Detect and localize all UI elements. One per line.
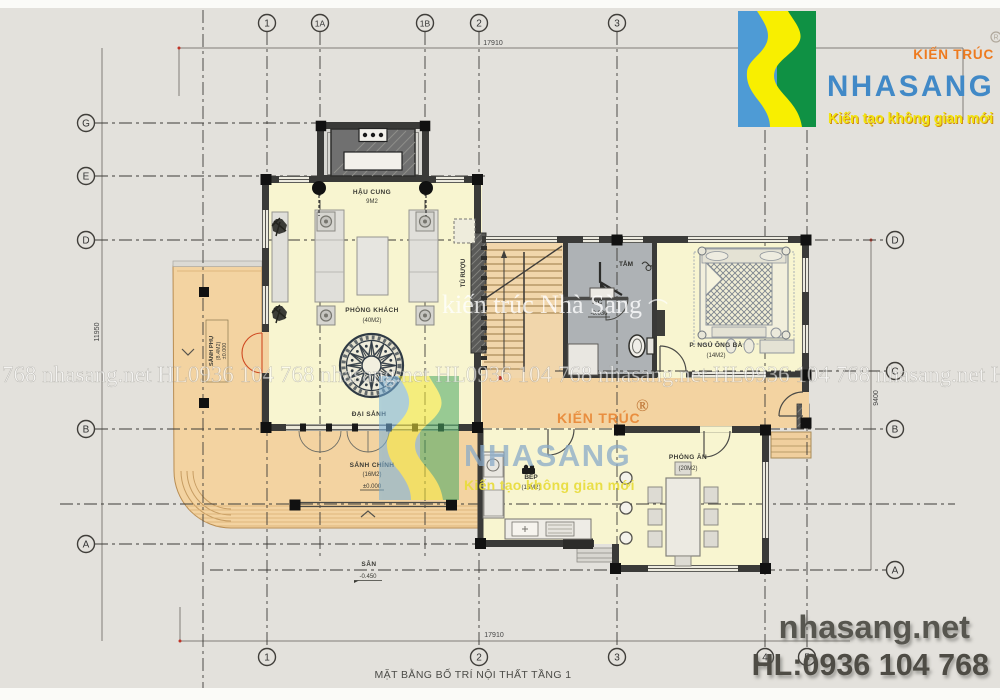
svg-text:1: 1 bbox=[264, 653, 270, 664]
svg-text:B: B bbox=[83, 425, 90, 436]
svg-text:D: D bbox=[82, 236, 89, 247]
svg-text:⌒: ⌒ bbox=[648, 298, 668, 321]
svg-text:3: 3 bbox=[614, 653, 620, 664]
svg-text:A: A bbox=[892, 566, 899, 577]
svg-text:±0.000: ±0.000 bbox=[363, 484, 382, 490]
svg-text:G: G bbox=[82, 119, 90, 130]
svg-text:KIẾN TRÚC: KIẾN TRÚC bbox=[557, 409, 640, 426]
svg-text:SÂN: SÂN bbox=[361, 559, 376, 568]
svg-text:P. NGỦ ÔNG BÀ: P. NGỦ ÔNG BÀ bbox=[689, 340, 742, 349]
svg-text:KIẾN TRÚC: KIẾN TRÚC bbox=[913, 47, 994, 62]
svg-text:PHÒNG KHÁCH: PHÒNG KHÁCH bbox=[345, 305, 399, 314]
svg-text:-0.450: -0.450 bbox=[359, 574, 377, 580]
svg-text:NHASANG: NHASANG bbox=[827, 70, 994, 103]
svg-text:1: 1 bbox=[264, 19, 270, 30]
svg-text:17910: 17910 bbox=[484, 632, 504, 639]
svg-text:nhasang.net: nhasang.net bbox=[779, 609, 971, 645]
svg-text:2: 2 bbox=[476, 19, 482, 30]
svg-text:2: 2 bbox=[476, 653, 482, 664]
svg-text:B: B bbox=[892, 425, 899, 436]
svg-text:3: 3 bbox=[614, 19, 620, 30]
svg-text:HẬU CUNG: HẬU CUNG bbox=[353, 187, 391, 196]
svg-text:kiến trúc Nhà Sàng: kiến trúc Nhà Sàng bbox=[442, 290, 642, 319]
svg-text:TỦ RƯỢU: TỦ RƯỢU bbox=[460, 259, 467, 287]
svg-text:(20M2): (20M2) bbox=[678, 466, 697, 472]
svg-text:PHÒNG ĂN: PHÒNG ĂN bbox=[669, 452, 707, 461]
svg-text:MẶT BẰNG BỐ TRÍ NỘI THẤT TẦNG: MẶT BẰNG BỐ TRÍ NỘI THẤT TẦNG 1 bbox=[375, 667, 572, 681]
svg-text:NHASANG: NHASANG bbox=[464, 438, 631, 473]
svg-text:HL:0936 104 768: HL:0936 104 768 bbox=[752, 648, 989, 682]
svg-text:E: E bbox=[83, 172, 90, 183]
svg-text:A: A bbox=[83, 540, 90, 551]
svg-text:TẮM: TẮM bbox=[619, 259, 633, 268]
svg-text:Kiến tạo không gian mới: Kiến tạo không gian mới bbox=[828, 111, 993, 127]
svg-text:(16M2): (16M2) bbox=[362, 472, 381, 478]
svg-text:17910: 17910 bbox=[483, 40, 503, 47]
svg-text:1B: 1B bbox=[420, 19, 431, 29]
svg-text:±0.000: ±0.000 bbox=[222, 343, 228, 359]
svg-text:768 nhasang.net HL0936 104 768: 768 nhasang.net HL0936 104 768 nhasang.n… bbox=[2, 362, 1000, 387]
svg-text:(14M2): (14M2) bbox=[706, 353, 725, 359]
svg-text:R: R bbox=[993, 35, 998, 42]
svg-text:9M2: 9M2 bbox=[366, 199, 378, 205]
svg-text:1A: 1A bbox=[315, 19, 326, 29]
svg-text:Kiến tạo không gian mới: Kiến tạo không gian mới bbox=[464, 477, 635, 493]
svg-text:11950: 11950 bbox=[94, 322, 101, 341]
svg-text:9400: 9400 bbox=[873, 390, 880, 406]
svg-text:(40M2): (40M2) bbox=[362, 318, 381, 324]
svg-text:D: D bbox=[891, 236, 898, 247]
